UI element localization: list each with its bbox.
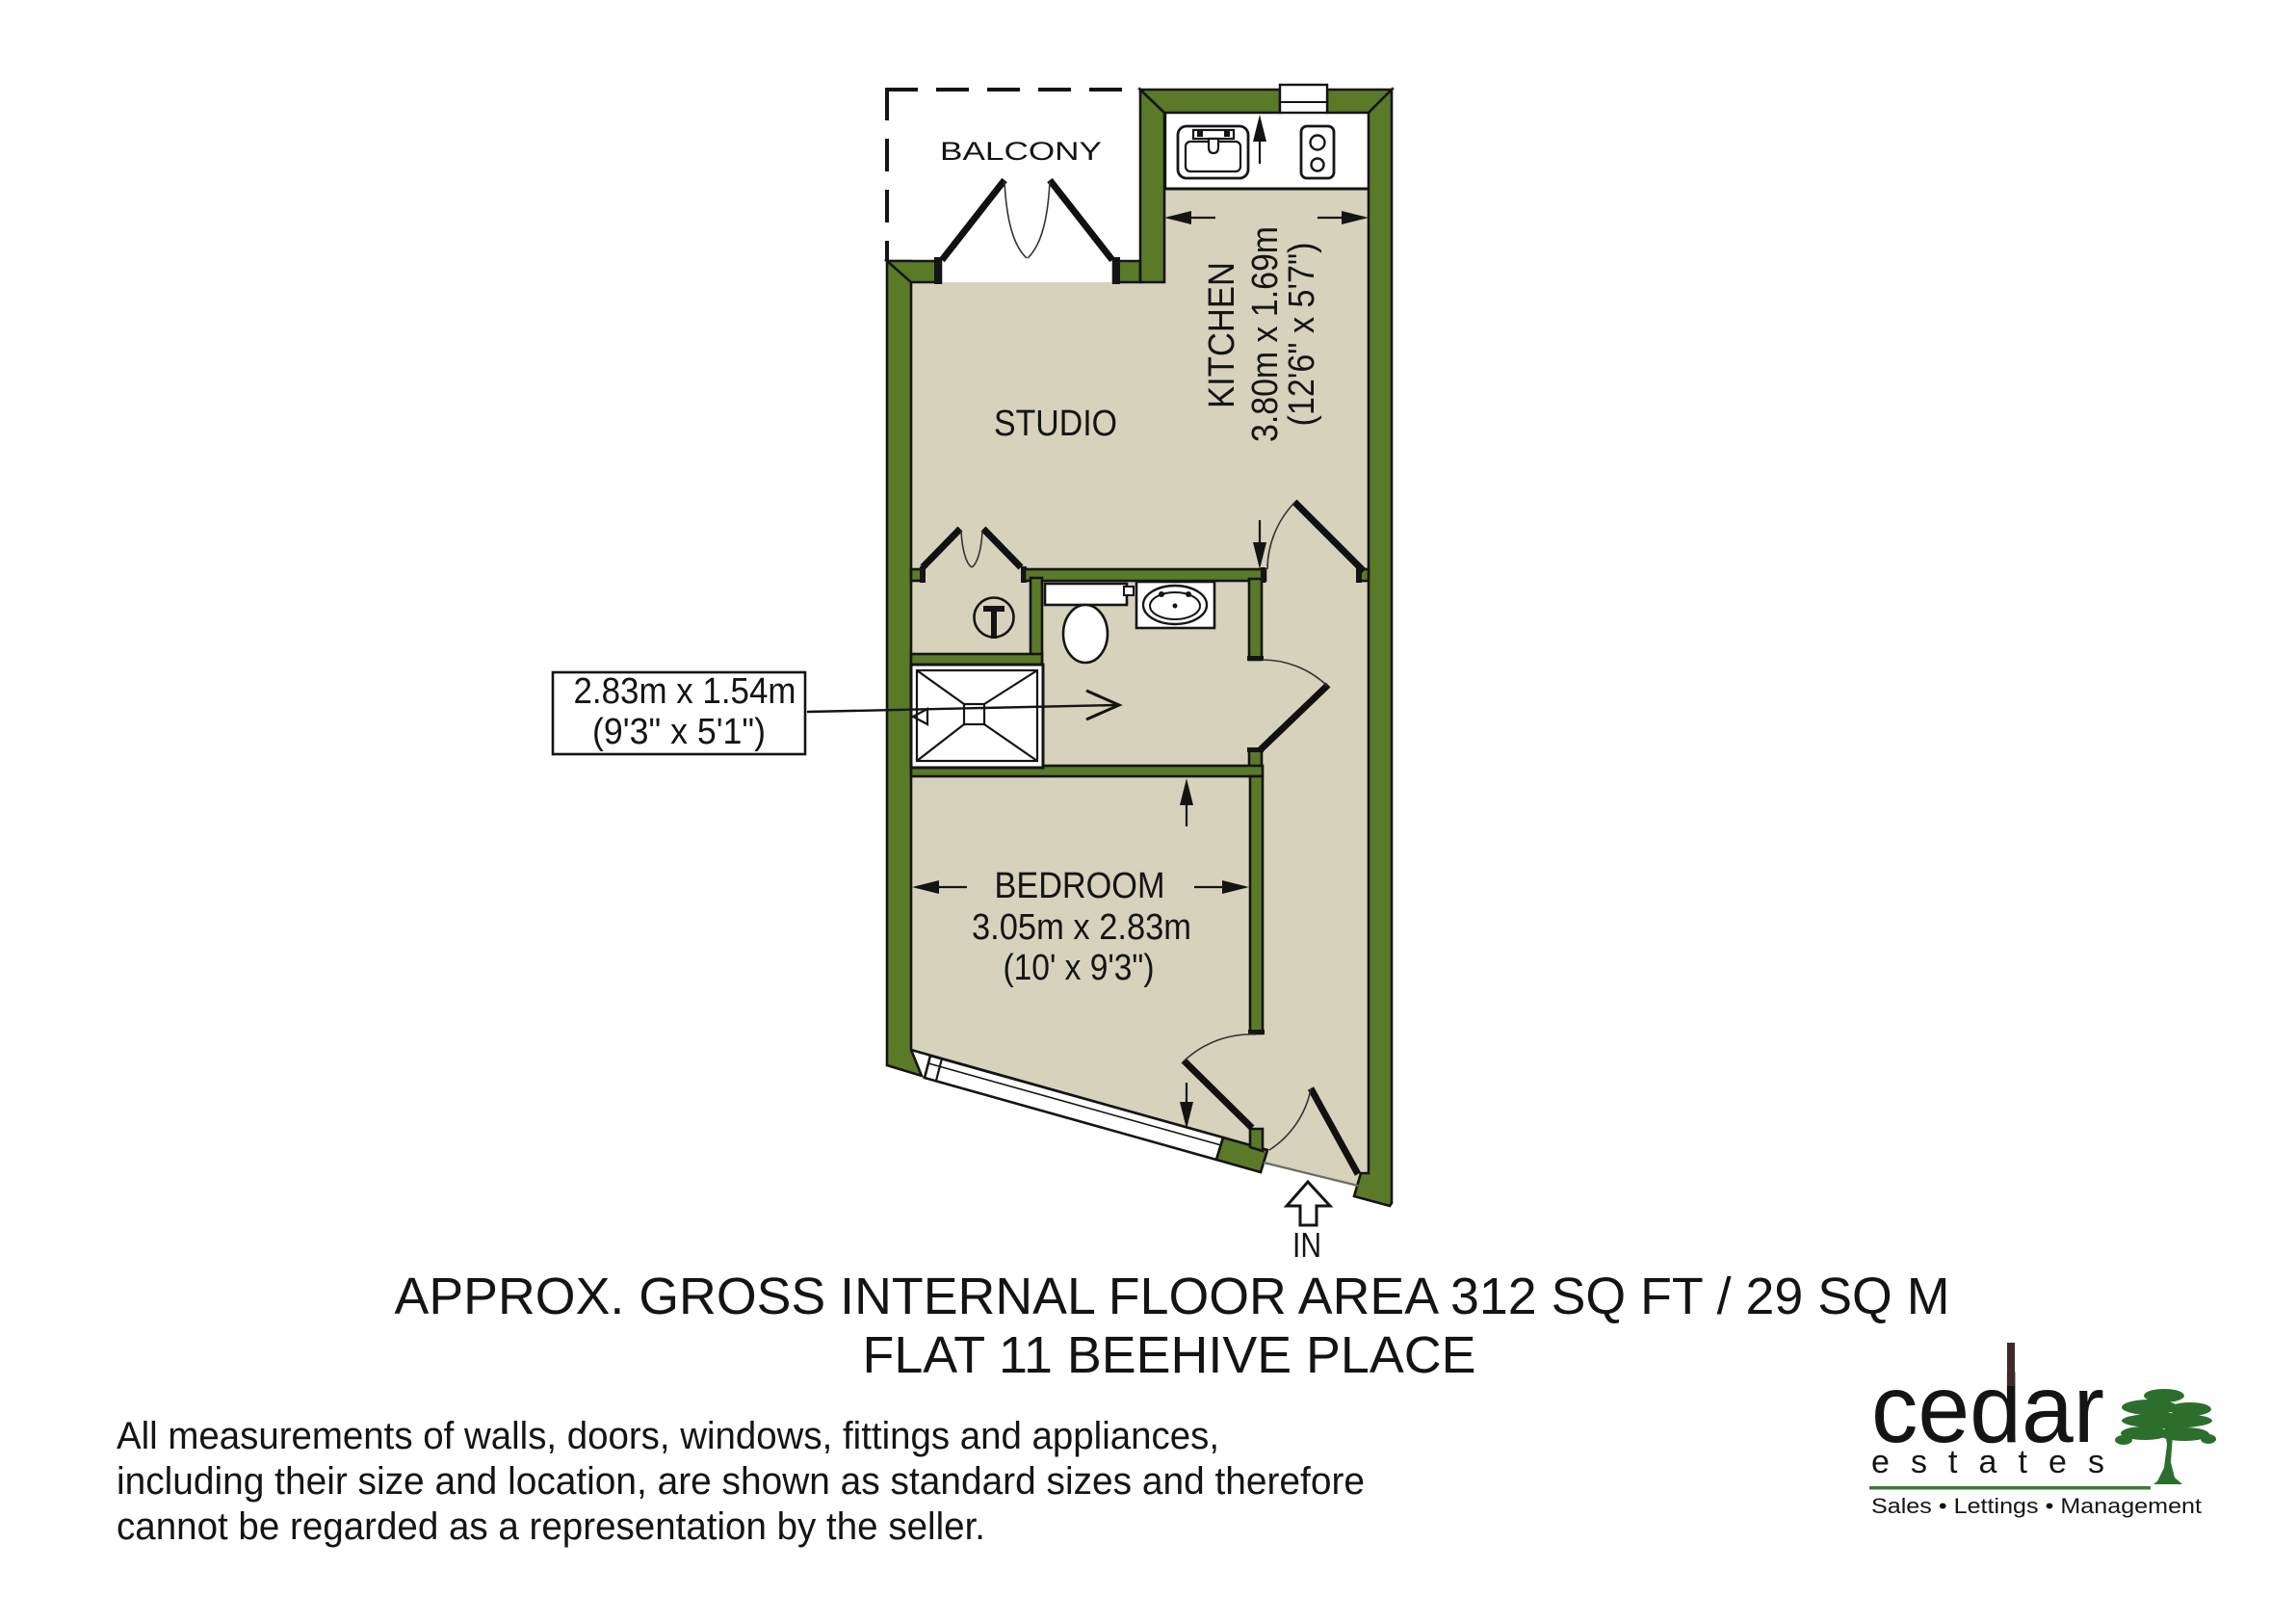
svg-text:3.05m x 2.83m: 3.05m x 2.83m: [972, 907, 1191, 948]
svg-text:BEDROOM: BEDROOM: [995, 866, 1165, 906]
svg-text:IN: IN: [1292, 1225, 1321, 1265]
svg-text:APPROX. GROSS INTERNAL FLOOR A: APPROX. GROSS INTERNAL FLOOR AREA 312 SQ…: [395, 1268, 1950, 1325]
svg-text:(12'6" x 5'7"): (12'6" x 5'7"): [1282, 243, 1322, 427]
svg-text:2.83m x 1.54m: 2.83m x 1.54m: [574, 671, 796, 712]
svg-text:KITCHEN: KITCHEN: [1202, 262, 1242, 408]
svg-text:(10' x 9'3"): (10' x 9'3"): [1004, 948, 1155, 988]
svg-text:Sales • Lettings • Management: Sales • Lettings • Management: [1871, 1494, 2202, 1518]
svg-text:BALCONY: BALCONY: [940, 137, 1102, 166]
svg-text:FLAT 11 BEEHIVE PLACE: FLAT 11 BEEHIVE PLACE: [863, 1326, 1476, 1384]
svg-text:3.80m x 1.69m: 3.80m x 1.69m: [1245, 226, 1286, 442]
svg-text:All measurements of walls, doo: All measurements of walls, doors, window…: [117, 1415, 1219, 1457]
svg-text:(9'3" x 5'1"): (9'3" x 5'1"): [592, 712, 766, 752]
svg-text:including their size and locat: including their size and location, are s…: [117, 1460, 1365, 1503]
svg-text:STUDIO: STUDIO: [994, 404, 1117, 444]
svg-text:cannot be regarded as a repres: cannot be regarded as a representation b…: [117, 1505, 985, 1548]
